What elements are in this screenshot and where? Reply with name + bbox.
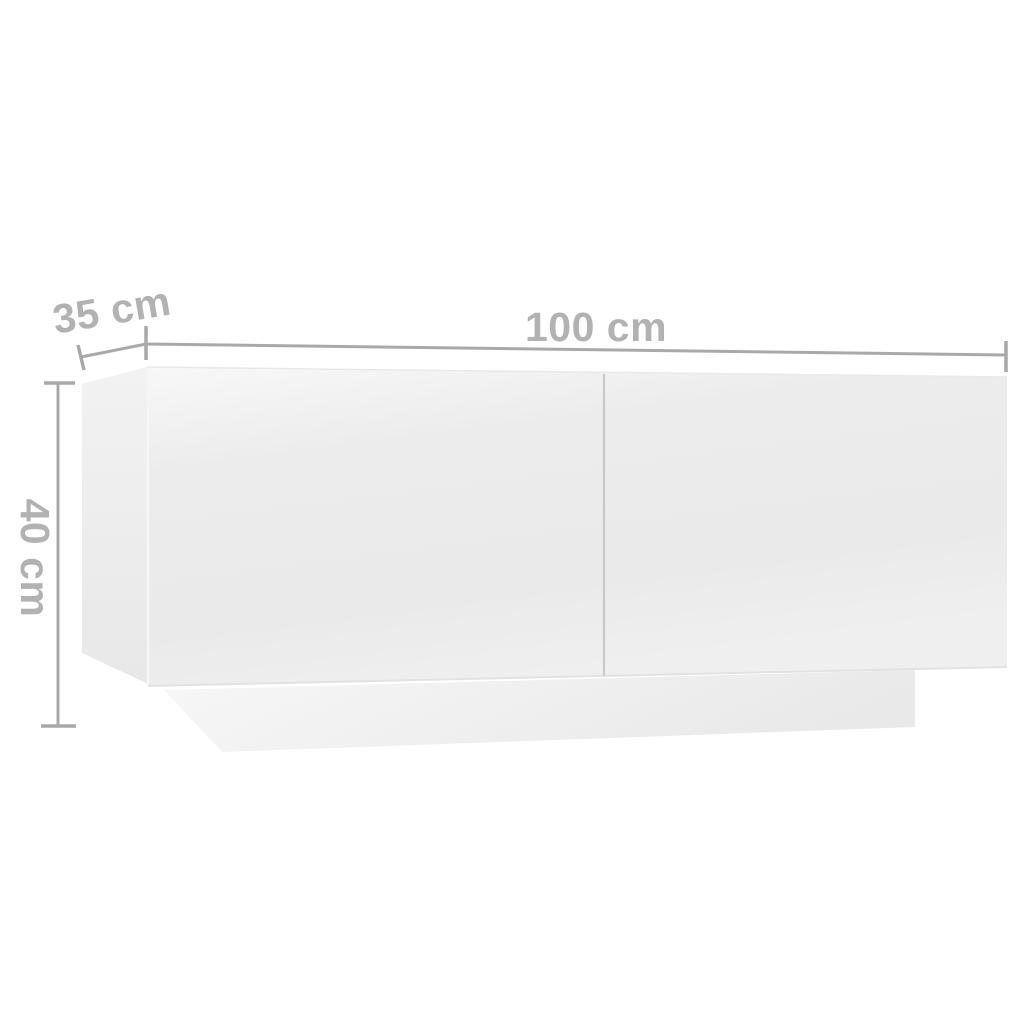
dimension-diagram-canvas: 100 cm 35 cm 40 cm [0,0,1024,1024]
cabinet-side-panel [82,367,148,684]
depth-dimension-line [81,344,146,357]
width-dimension-label: 100 cm [525,304,667,350]
tv-cabinet [82,367,1007,752]
width-dimension: 100 cm [146,304,1006,372]
height-dimension-label: 40 cm [12,499,58,618]
depth-dimension-label: 35 cm [49,278,174,343]
product-dimension-illustration: 100 cm 35 cm 40 cm [0,0,1024,1024]
height-dimension: 40 cm [12,383,76,726]
cabinet-front-panel [147,367,1007,686]
depth-dimension: 35 cm [49,278,174,370]
